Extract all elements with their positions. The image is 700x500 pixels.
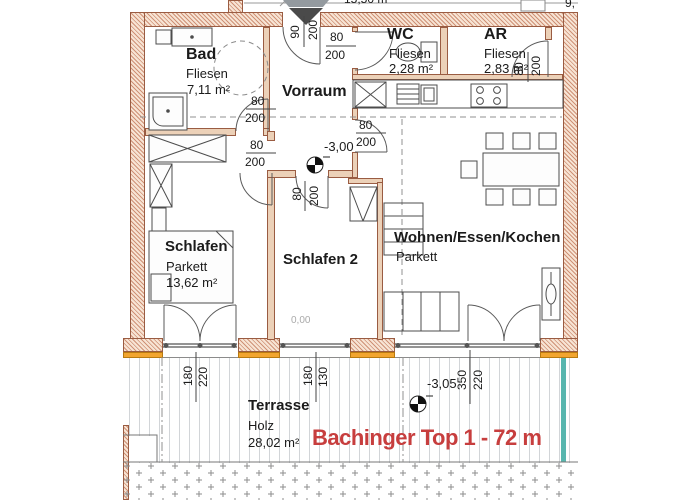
level-marker-icon-terrasse	[410, 396, 433, 412]
dim-terrace-window-schlafen2-width: 180	[302, 366, 314, 386]
kitchen-counter	[353, 80, 563, 108]
room-floor-ar: Fliesen	[484, 47, 526, 60]
level-value-door-sill: 0,00	[291, 316, 310, 326]
edge-dim-top-right: 9,	[565, 0, 575, 9]
room-label-vorraum: Vorraum	[282, 84, 347, 100]
dim-bad-door-width: 80	[251, 95, 264, 107]
room-label-schlafen2: Schlafen 2	[283, 252, 358, 267]
glazing-tracks	[163, 344, 540, 348]
dining-table	[461, 133, 559, 205]
dim-terrace-window-schlafen2-height: 130	[317, 367, 329, 387]
dim-terrace-door-schlafen-height: 220	[197, 367, 209, 387]
room-label-wc: WC	[387, 27, 414, 43]
room-floor-schlafen: Parkett	[166, 260, 207, 273]
radiator	[542, 268, 560, 320]
dim-ar-door-width: 80	[513, 62, 525, 75]
dim-schlafen-door-width: 80	[250, 139, 263, 151]
room-floor-terrasse: Holz	[248, 419, 274, 432]
room-floor-bad: Fliesen	[186, 67, 228, 80]
dim-schlafen-door-height: 200	[245, 156, 265, 168]
room-label-wohnen: Wohnen/Essen/Kochen	[394, 230, 560, 245]
dim-schlafen2-door-height: 200	[308, 186, 320, 206]
dim-terrace-door-wohnen-height: 220	[472, 370, 484, 390]
dim-wohnen-door-width: 80	[359, 119, 372, 131]
room-label-ar: AR	[484, 27, 507, 43]
room-floor-wc: Fliesen	[389, 47, 431, 60]
dim-entrance-width: 90	[289, 25, 301, 38]
dim-terrace-door-schlafen-width: 180	[182, 366, 194, 386]
unit-title-overlay: Bachinger Top 1 - 72 m	[312, 425, 541, 451]
upper-plan-fragment	[521, 0, 545, 11]
room-label-terrasse: Terrasse	[248, 398, 309, 413]
room-floor-wohnen: Parkett	[396, 250, 437, 263]
wohnen-sideboards	[384, 203, 459, 331]
level-marker-icon-vorraum	[307, 157, 330, 173]
dim-schlafen2-door-width: 80	[291, 187, 303, 200]
dim-wohnen-door-height: 200	[356, 136, 376, 148]
room-area-bad: 7,11 m²	[187, 83, 230, 96]
room-label-bad: Bad	[186, 47, 216, 63]
dim-wc-door-width: 80	[330, 31, 343, 43]
dim-wc-door-height: 200	[325, 49, 345, 61]
level-value-terrasse: -3,05	[427, 377, 457, 390]
level-value-vorraum: -3,00	[324, 140, 354, 153]
room-area-wc: 2,28 m²	[389, 62, 433, 75]
room-area-terrasse: 28,02 m²	[248, 436, 299, 449]
floor-plan: Bad Fliesen 7,11 m² Vorraum WC Fliesen 2…	[0, 0, 700, 500]
dim-entrance-height: 200	[307, 20, 319, 40]
room-area-schlafen: 13,62 m²	[166, 276, 217, 289]
dim-terrace-door-wohnen-width: 350	[456, 370, 468, 390]
room-label-schlafen: Schlafen	[165, 239, 228, 254]
dimension-ticks	[196, 16, 528, 404]
dim-bad-door-height: 200	[245, 112, 265, 124]
edge-dim-top: 15,50 m	[344, 0, 387, 5]
duct-fixture	[350, 187, 377, 221]
dim-ar-door-height: 200	[530, 56, 542, 76]
